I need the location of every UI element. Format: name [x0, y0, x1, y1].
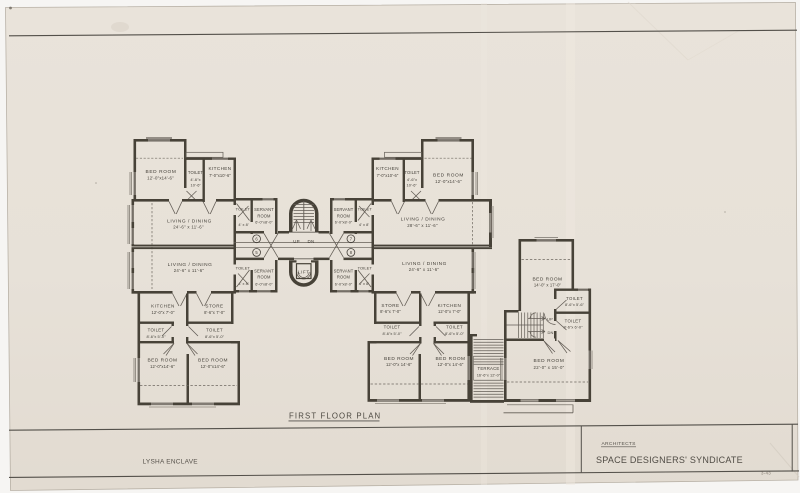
svg-text:LIVING / DINING: LIVING / DINING	[167, 218, 212, 224]
svg-text:BED ROOM: BED ROOM	[532, 276, 562, 282]
svg-text:8'-6"x 5'-0": 8'-6"x 5'-0"	[445, 331, 465, 336]
svg-text:12'-0"x 7'-0": 12'-0"x 7'-0"	[151, 310, 175, 315]
svg-text:BED ROOM: BED ROOM	[433, 172, 464, 178]
svg-text:LIVING / DINING: LIVING / DINING	[402, 261, 447, 267]
svg-text:6'-0"x8'-0": 6'-0"x8'-0"	[255, 220, 273, 224]
svg-text:6'-0"x8'-0": 6'-0"x8'-0"	[335, 282, 353, 286]
svg-text:TOILET: TOILET	[566, 296, 583, 301]
svg-text:24'-6" x 11'-6": 24'-6" x 11'-6"	[409, 267, 440, 272]
svg-text:TOILET: TOILET	[206, 328, 223, 333]
svg-text:24'-6" x 11'-6": 24'-6" x 11'-6"	[174, 268, 205, 273]
svg-text:ROOM: ROOM	[257, 275, 271, 280]
svg-text:LIVING / DINING: LIVING / DINING	[401, 217, 446, 223]
svg-text:6'-0"x8'-0": 6'-0"x8'-0"	[255, 282, 273, 286]
svg-text:ROOM: ROOM	[337, 214, 351, 219]
svg-text:BED ROOM: BED ROOM	[198, 357, 228, 363]
svg-text:SERVANT: SERVANT	[334, 207, 354, 212]
svg-text:3-43: 3-43	[761, 471, 771, 476]
svg-text:SERVANT: SERVANT	[254, 207, 274, 212]
svg-text:TOILET: TOILET	[446, 325, 463, 330]
svg-text:4'-6"x: 4'-6"x	[407, 177, 417, 182]
svg-text:24'-6" x 11'-6": 24'-6" x 11'-6"	[173, 224, 204, 229]
svg-text:10'-6": 10'-6"	[191, 183, 202, 188]
svg-text:12'-0"x14'-6": 12'-0"x14'-6"	[201, 364, 226, 369]
svg-text:12'-0"x 14'-6": 12'-0"x 14'-6"	[438, 362, 464, 367]
svg-text:8'-6"x 7'-0": 8'-6"x 7'-0"	[380, 309, 401, 314]
svg-text:4'-6"x: 4'-6"x	[190, 177, 200, 182]
svg-text:TOILET: TOILET	[188, 170, 204, 175]
svg-text:TOILET: TOILET	[236, 206, 251, 211]
svg-text:KITCHEN: KITCHEN	[151, 304, 175, 309]
svg-text:4' x 8': 4' x 8'	[238, 222, 248, 227]
svg-text:BED ROOM: BED ROOM	[146, 169, 177, 175]
svg-text:8'-6"x 5'-0": 8'-6"x 5'-0"	[382, 331, 402, 336]
svg-text:ARCHITECTS: ARCHITECTS	[602, 441, 637, 447]
svg-text:TOILET: TOILET	[384, 325, 401, 330]
svg-text:ROOM: ROOM	[337, 275, 351, 280]
svg-text:STORE: STORE	[205, 304, 223, 309]
svg-text:6'-0"x8'-0": 6'-0"x8'-0"	[335, 220, 353, 224]
svg-text:DN: DN	[548, 330, 554, 335]
svg-text:TERRACE: TERRACE	[478, 366, 500, 371]
svg-text:UP: UP	[547, 316, 553, 321]
svg-text:DN: DN	[307, 239, 314, 244]
svg-text:TOILET: TOILET	[358, 265, 373, 270]
svg-text:7'-0"x10'-6": 7'-0"x10'-6"	[377, 173, 399, 178]
svg-text:KITCHEN: KITCHEN	[376, 166, 399, 171]
svg-text:BED ROOM: BED ROOM	[534, 358, 565, 364]
svg-text:8'-6"x 5'-0": 8'-6"x 5'-0"	[205, 334, 225, 339]
svg-text:7'-0"x10'-6": 7'-0"x10'-6"	[209, 173, 231, 178]
svg-text:12'-0"x 14'-6": 12'-0"x 14'-6"	[386, 362, 412, 367]
svg-text:UP: UP	[293, 239, 300, 244]
svg-text:TOILET: TOILET	[236, 265, 251, 270]
svg-text:KITCHEN: KITCHEN	[438, 303, 462, 308]
svg-text:LIFT: LIFT	[298, 269, 310, 274]
svg-text:22'-0" x 15'-0": 22'-0" x 15'-0"	[534, 365, 565, 370]
svg-text:10'-6": 10'-6"	[406, 183, 417, 188]
svg-text:12'-0"x 7'-0": 12'-0"x 7'-0"	[438, 309, 462, 314]
svg-text:28'-6" x 11'-6": 28'-6" x 11'-6"	[407, 223, 438, 228]
svg-text:12'-0"x14'-6": 12'-0"x14'-6"	[150, 364, 175, 369]
svg-text:SERVANT: SERVANT	[334, 269, 354, 274]
svg-text:BED ROOM: BED ROOM	[384, 356, 414, 362]
svg-text:8'-6"x 6'-0": 8'-6"x 6'-0"	[563, 324, 583, 329]
svg-text:ROOM: ROOM	[257, 214, 271, 219]
svg-text:FIRST FLOOR PLAN: FIRST FLOOR PLAN	[289, 412, 381, 421]
svg-text:KITCHEN: KITCHEN	[209, 166, 232, 171]
svg-text:TOILET: TOILET	[404, 170, 420, 175]
svg-text:BED ROOM: BED ROOM	[435, 356, 465, 362]
svg-text:4' x 8': 4' x 8'	[359, 222, 369, 227]
svg-text:8'-6"x 5'-6": 8'-6"x 5'-6"	[565, 302, 585, 307]
svg-text:12'-0"x14'-6": 12'-0"x14'-6"	[435, 179, 462, 184]
svg-text:8'-6"x 7'-0": 8'-6"x 7'-0"	[204, 310, 225, 315]
svg-text:TOILET: TOILET	[565, 318, 582, 323]
svg-text:12'-0"x14'-6": 12'-0"x14'-6"	[147, 176, 174, 181]
svg-text:STORE: STORE	[381, 303, 399, 308]
svg-text:16'-6"x 12'-0": 16'-6"x 12'-0"	[477, 372, 501, 377]
svg-text:SERVANT: SERVANT	[254, 269, 274, 274]
svg-text:LYSHA ENCLAVE: LYSHA ENCLAVE	[143, 458, 199, 465]
svg-text:TOILET: TOILET	[148, 328, 165, 333]
svg-text:SPACE DESIGNERS' SYNDICATE: SPACE DESIGNERS' SYNDICATE	[596, 455, 743, 465]
svg-text:14'-0" x 17'-0": 14'-0" x 17'-0"	[534, 283, 562, 288]
svg-text:BED ROOM: BED ROOM	[147, 357, 177, 363]
